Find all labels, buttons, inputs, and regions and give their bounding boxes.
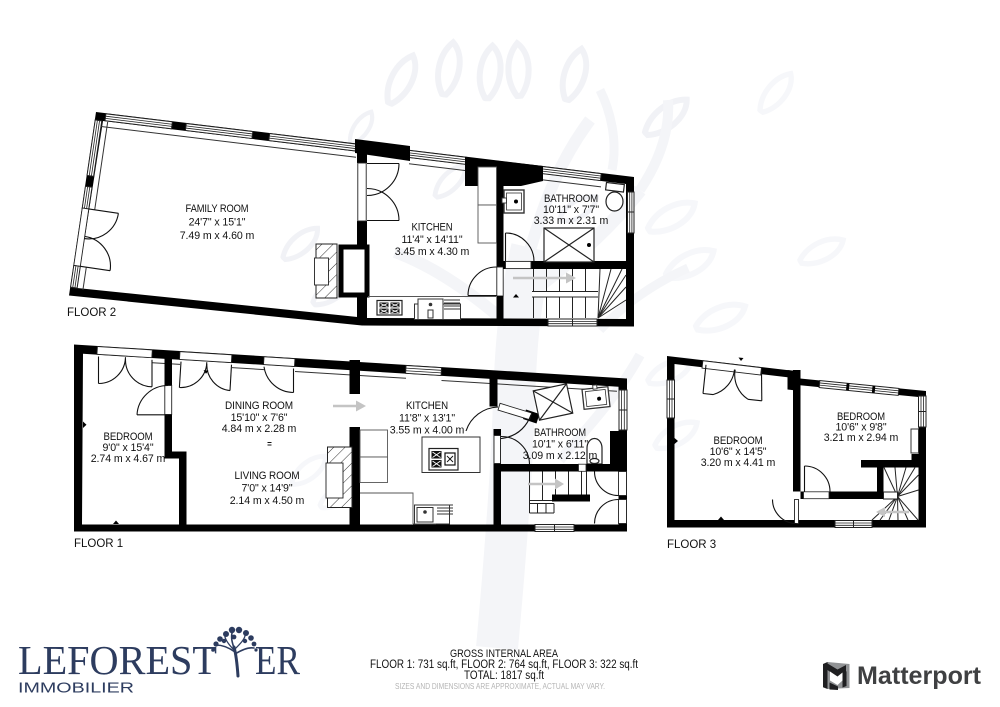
svg-text:BATHROOM: BATHROOM: [534, 427, 586, 439]
svg-text:FLOOR 2: FLOOR 2: [67, 307, 116, 319]
svg-text:TOTAL: 1817 sq.ft: TOTAL: 1817 sq.ft: [464, 670, 545, 682]
svg-text:10'1" x 6'11": 10'1" x 6'11": [532, 439, 588, 451]
svg-text:FAMILY ROOM: FAMILY ROOM: [186, 203, 249, 215]
svg-text:ER: ER: [255, 637, 300, 683]
svg-text:4.84 m x 2.28 m: 4.84 m x 2.28 m: [222, 423, 297, 435]
svg-text:3.33 m x 2.31 m: 3.33 m x 2.31 m: [534, 215, 609, 227]
svg-text:KITCHEN: KITCHEN: [412, 222, 453, 234]
svg-text:DINING ROOM: DINING ROOM: [225, 400, 293, 412]
svg-text:KITCHEN: KITCHEN: [406, 400, 448, 412]
svg-text:3.09 m x 2.12 m: 3.09 m x 2.12 m: [523, 450, 598, 462]
svg-text:7'0" x 14'9": 7'0" x 14'9": [241, 483, 292, 495]
svg-text:11'4" x 14'11": 11'4" x 14'11": [401, 234, 462, 246]
svg-text:3.45 m x 4.30 m: 3.45 m x 4.30 m: [395, 246, 470, 258]
svg-text:FLOOR 3: FLOOR 3: [667, 539, 716, 551]
svg-text:24'7" x 15'1": 24'7" x 15'1": [189, 217, 246, 229]
svg-text:Matterport: Matterport: [857, 662, 982, 690]
svg-text:7.49 m x 4.60 m: 7.49 m x 4.60 m: [180, 230, 255, 242]
svg-text:3.20 m x 4.41 m: 3.20 m x 4.41 m: [701, 457, 776, 469]
svg-text:2.14 m x 4.50 m: 2.14 m x 4.50 m: [230, 495, 305, 507]
svg-text:LEFOREST: LEFOREST: [18, 637, 217, 683]
svg-text:LIVING ROOM: LIVING ROOM: [235, 470, 300, 482]
svg-text:3.55 m x 4.00 m: 3.55 m x 4.00 m: [390, 425, 465, 437]
svg-text:IMMOBILIER: IMMOBILIER: [18, 681, 134, 697]
svg-text:SIZES AND DIMENSIONS ARE APPRO: SIZES AND DIMENSIONS ARE APPROXIMATE, AC…: [395, 682, 605, 691]
svg-text:3.21 m x 2.94 m: 3.21 m x 2.94 m: [824, 432, 899, 444]
svg-text:2.74 m x 4.67 m: 2.74 m x 4.67 m: [91, 453, 166, 465]
svg-text:11'8" x 13'1": 11'8" x 13'1": [399, 413, 455, 425]
svg-text:FLOOR 1: FLOOR 1: [74, 538, 123, 550]
